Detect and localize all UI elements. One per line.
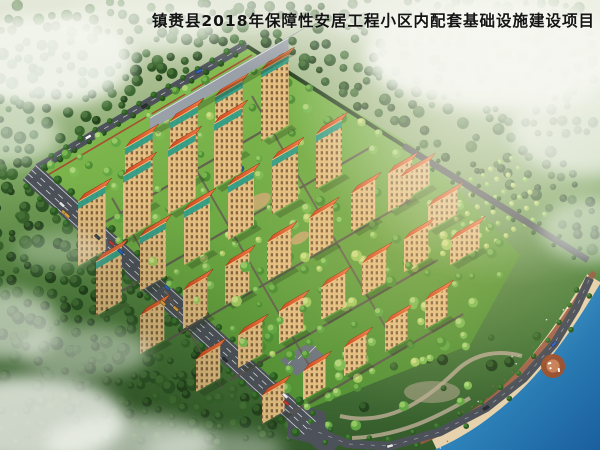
tree-highlight: [156, 75, 160, 79]
tree-highlight: [249, 104, 254, 109]
tree-highlight: [414, 443, 417, 446]
tree-highlight: [43, 166, 46, 169]
tree-highlight: [464, 424, 467, 427]
tree-highlight: [198, 133, 201, 136]
tree-highlight: [367, 436, 370, 439]
tree-highlight: [182, 85, 188, 91]
tree-highlight: [118, 170, 123, 175]
tree-highlight: [86, 162, 91, 167]
tree-highlight: [77, 154, 81, 158]
tree-highlight: [190, 79, 193, 82]
tree-highlight: [49, 153, 52, 156]
tree-highlight: [72, 148, 75, 151]
tree-highlight: [160, 96, 163, 99]
tree-highlight: [137, 101, 140, 104]
tree-highlight: [323, 440, 326, 443]
tree-highlight: [132, 76, 139, 83]
tree-highlight: [181, 75, 184, 78]
tree-highlight: [206, 112, 211, 117]
tree-highlight: [325, 422, 330, 427]
tree-highlight: [93, 116, 98, 121]
cloud: [20, 326, 150, 378]
tree-highlight: [172, 87, 177, 92]
tree-highlight: [411, 430, 414, 433]
tree-highlight: [102, 131, 105, 134]
tree-highlight: [57, 156, 61, 160]
tree-highlight: [102, 101, 108, 107]
tree-highlight: [87, 140, 90, 143]
tree-highlight: [125, 86, 132, 93]
tree-highlight: [47, 161, 52, 166]
tree-highlight: [93, 127, 96, 130]
tree-highlight: [95, 132, 100, 137]
tree-highlight: [131, 113, 134, 116]
tree-highlight: [198, 152, 202, 156]
tree-highlight: [146, 113, 150, 117]
tree-highlight: [81, 111, 88, 118]
beach-speck: [440, 447, 442, 449]
project-title: 镇赉县2018年保障性安居工程小区内配套基础设施建设项目: [152, 9, 595, 31]
tree-highlight: [121, 96, 125, 100]
tree-highlight: [75, 126, 81, 132]
tree-highlight: [435, 424, 438, 427]
tree-highlight: [155, 186, 159, 190]
tree-highlight: [70, 167, 76, 173]
tree-highlight: [202, 76, 207, 81]
tree-highlight: [64, 145, 67, 148]
aerial-rendering-canvas: [0, 0, 600, 450]
tree-highlight: [386, 437, 389, 440]
tree-highlight: [204, 70, 207, 73]
beach-speck: [447, 441, 449, 443]
tree-highlight: [151, 92, 155, 96]
tree-highlight: [64, 108, 70, 114]
tree-highlight: [119, 102, 123, 106]
tree-highlight: [351, 421, 357, 427]
tree-highlight: [310, 411, 314, 415]
tree-highlight: [116, 122, 119, 125]
tree-highlight: [78, 136, 82, 140]
tree-highlight: [107, 119, 110, 122]
tree-highlight: [62, 150, 68, 156]
tree-highlight: [201, 172, 207, 178]
tree-highlight: [7, 169, 14, 176]
tree-highlight: [201, 188, 205, 192]
tree-highlight: [346, 435, 349, 438]
tree-highlight: [112, 138, 118, 144]
cloud: [15, 232, 105, 268]
tree-highlight: [328, 427, 331, 430]
rendering-stage: 镇赉县2018年保障性安居工程小区内配套基础设施建设项目: [0, 0, 600, 450]
tree-highlight: [166, 84, 169, 87]
tree-highlight: [122, 110, 125, 113]
tree-highlight: [104, 167, 110, 173]
